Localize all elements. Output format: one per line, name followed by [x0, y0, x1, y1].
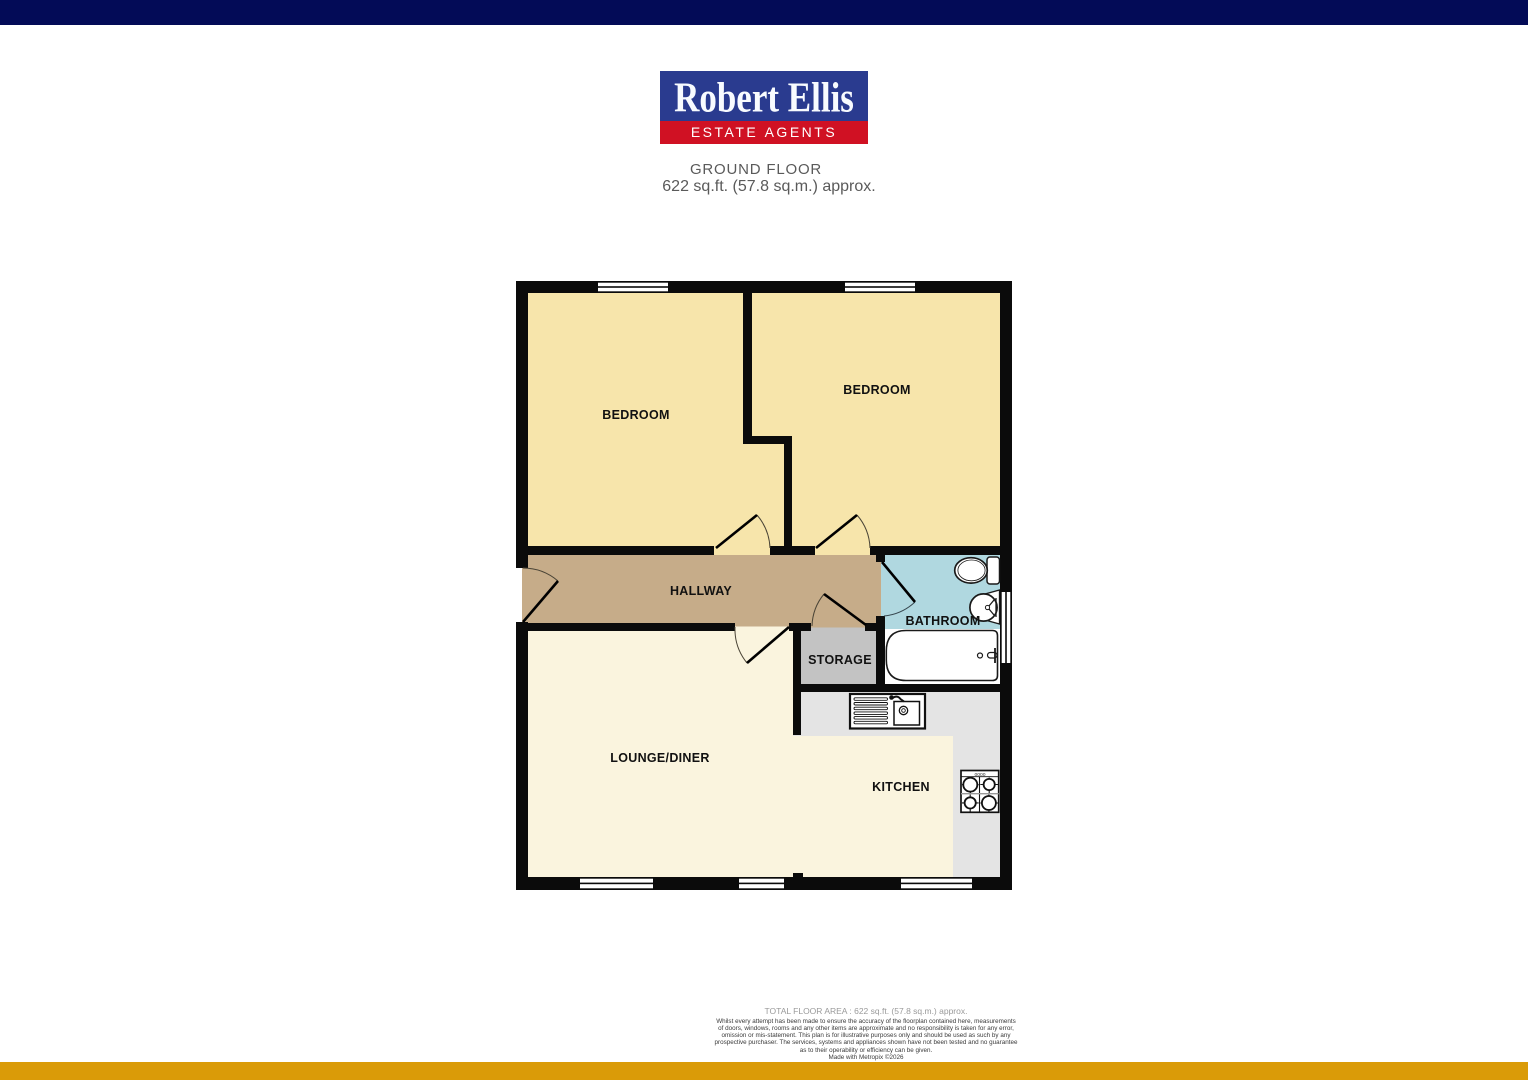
svg-text:BATHROOM: BATHROOM: [905, 614, 980, 628]
svg-text:oooo: oooo: [974, 772, 985, 778]
svg-text:KITCHEN: KITCHEN: [872, 780, 930, 794]
svg-text:BEDROOM: BEDROOM: [843, 383, 910, 397]
svg-text:STORAGE: STORAGE: [808, 653, 872, 667]
svg-text:BEDROOM: BEDROOM: [602, 408, 669, 422]
svg-text:HALLWAY: HALLWAY: [670, 584, 732, 598]
svg-text:LOUNGE/DINER: LOUNGE/DINER: [610, 751, 709, 765]
